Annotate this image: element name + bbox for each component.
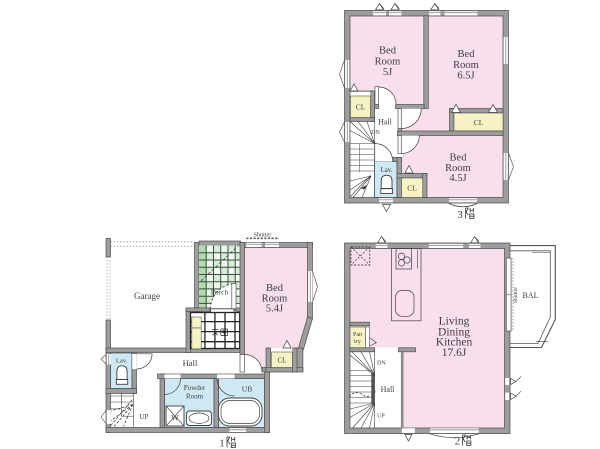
svg-text:CL: CL [356, 103, 366, 112]
svg-text:DN: DN [377, 361, 386, 367]
svg-text:UB: UB [242, 385, 252, 394]
svg-text:Hall: Hall [183, 358, 198, 368]
svg-text:6.5J: 6.5J [457, 71, 474, 82]
svg-text:UP: UP [140, 413, 149, 421]
svg-text:UP: UP [377, 414, 385, 420]
svg-text:CL: CL [474, 118, 484, 127]
svg-text:5J: 5J [383, 67, 392, 78]
svg-text:Porch: Porch [211, 288, 229, 297]
svg-text:Room: Room [453, 60, 479, 71]
svg-text:CL: CL [278, 357, 287, 365]
svg-text:4.5J: 4.5J [449, 173, 466, 184]
svg-text:Shutter: Shutter [513, 287, 519, 303]
svg-text:1: 1 [219, 438, 225, 449]
svg-text:Shutter: Shutter [253, 231, 271, 238]
svg-text:Bed: Bed [379, 46, 397, 57]
svg-text:Hall: Hall [381, 385, 396, 394]
svg-text:Lav.: Lav. [116, 357, 128, 364]
svg-text:Hall: Hall [378, 118, 393, 127]
svg-text:BAL: BAL [523, 291, 539, 300]
svg-text:Lav.: Lav. [381, 167, 393, 174]
svg-text:Bed: Bed [450, 152, 468, 163]
svg-text:Bed: Bed [458, 49, 476, 60]
svg-text:Pan: Pan [353, 332, 362, 338]
svg-text:5.4J: 5.4J [266, 304, 283, 315]
svg-text:2: 2 [455, 436, 461, 448]
svg-text:Room: Room [186, 393, 204, 401]
svg-text:3: 3 [457, 209, 463, 221]
svg-text:CL: CL [407, 184, 417, 193]
svg-text:17.6J: 17.6J [442, 347, 467, 359]
svg-text:DN: DN [371, 130, 380, 136]
svg-text:W: W [171, 414, 179, 423]
svg-text:Garage: Garage [134, 291, 160, 301]
svg-text:Powder: Powder [184, 384, 206, 392]
svg-text:Bed: Bed [266, 283, 284, 294]
svg-text:try: try [354, 339, 361, 345]
svg-text:Room: Room [375, 56, 401, 67]
